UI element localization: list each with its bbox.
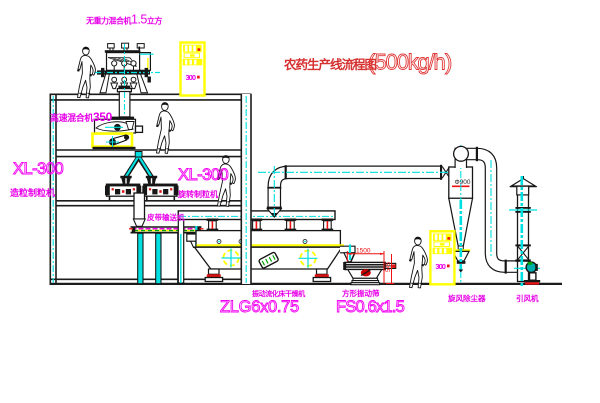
svg-text:农药生产线流程图: 农药生产线流程图	[283, 57, 377, 72]
svg-text:方形振动筛: 方形振动筛	[342, 288, 380, 298]
svg-text:1500: 1500	[356, 248, 371, 255]
svg-text:旋转制粒机: 旋转制粒机	[177, 189, 218, 199]
svg-text:Φ900: Φ900	[455, 179, 471, 186]
svg-text:FS0.6x1.5: FS0.6x1.5	[336, 298, 405, 316]
svg-text:旋风除尘器: 旋风除尘器	[447, 293, 486, 303]
svg-text:高速混合机350: 高速混合机350	[50, 110, 113, 124]
svg-text:引风机: 引风机	[516, 293, 539, 303]
svg-text:振动流化床干燥机: 振动流化床干燥机	[252, 289, 305, 298]
svg-text:皮带输送机: 皮带输送机	[146, 212, 185, 222]
svg-text:无重力混合机1.5立方: 无重力混合机1.5立方	[85, 13, 162, 27]
svg-text:造粒制粒机: 造粒制粒机	[10, 187, 55, 198]
svg-text:XL-300: XL-300	[178, 166, 229, 184]
svg-text:XL-300: XL-300	[13, 160, 64, 178]
svg-text:ZLG6x0.75: ZLG6x0.75	[220, 298, 299, 316]
svg-text:(500kg/h): (500kg/h)	[368, 50, 451, 75]
svg-text:545: 545	[386, 261, 392, 272]
